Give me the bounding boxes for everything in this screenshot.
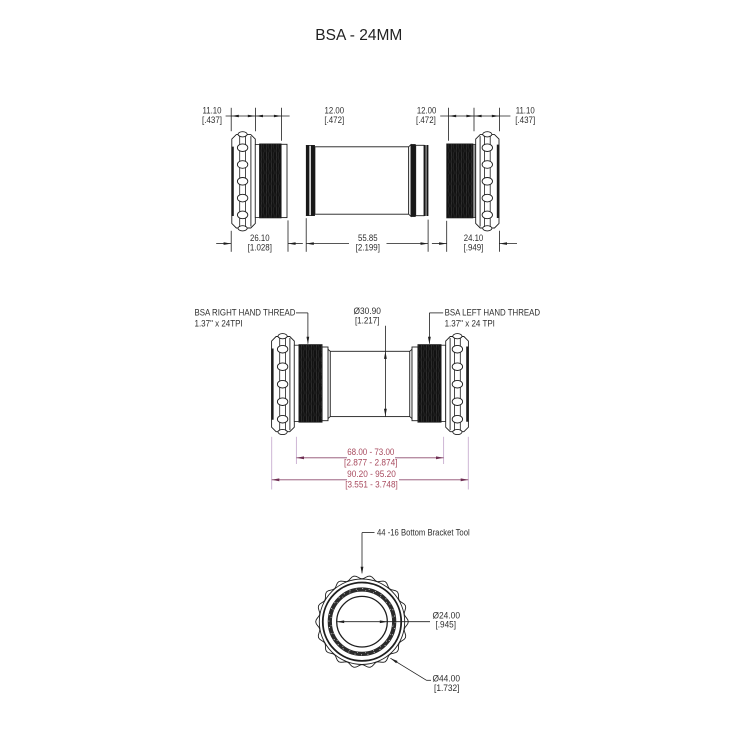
svg-text:90.20 - 95.20: 90.20 - 95.20 [347, 469, 396, 479]
svg-text:[.437]: [.437] [515, 115, 535, 125]
svg-text:[.437]: [.437] [202, 115, 222, 125]
svg-text:Ø30.90: Ø30.90 [354, 306, 381, 316]
svg-text:[.949]: [.949] [464, 242, 484, 252]
svg-text:1.37" x 24TPI: 1.37" x 24TPI [195, 319, 243, 329]
svg-text:[2.199]: [2.199] [356, 242, 380, 252]
svg-text:BSA LEFT HAND THREAD: BSA LEFT HAND THREAD [445, 308, 541, 318]
svg-text:1.37" x 24 TPI: 1.37" x 24 TPI [445, 319, 495, 329]
svg-text:[3.551 - 3.748]: [3.551 - 3.748] [345, 479, 398, 489]
svg-text:[1.028]: [1.028] [248, 242, 272, 252]
svg-text:[.472]: [.472] [416, 115, 436, 125]
svg-text:[1.732]: [1.732] [434, 683, 460, 693]
svg-text:44 -16 Bottom Bracket Tool: 44 -16 Bottom Bracket Tool [377, 528, 470, 538]
svg-text:68.00 - 73.00: 68.00 - 73.00 [347, 447, 394, 457]
svg-text:Ø44.00: Ø44.00 [433, 674, 461, 684]
svg-text:[1.217]: [1.217] [355, 315, 380, 325]
svg-text:24.10: 24.10 [464, 233, 484, 243]
svg-text:BSA RIGHT HAND THREAD: BSA RIGHT HAND THREAD [195, 308, 296, 318]
svg-text:[2.877 - 2.874]: [2.877 - 2.874] [344, 457, 398, 467]
svg-text:BSA - 24MM: BSA - 24MM [315, 27, 402, 44]
svg-text:[.945]: [.945] [436, 620, 457, 630]
svg-text:[.472]: [.472] [324, 115, 344, 125]
